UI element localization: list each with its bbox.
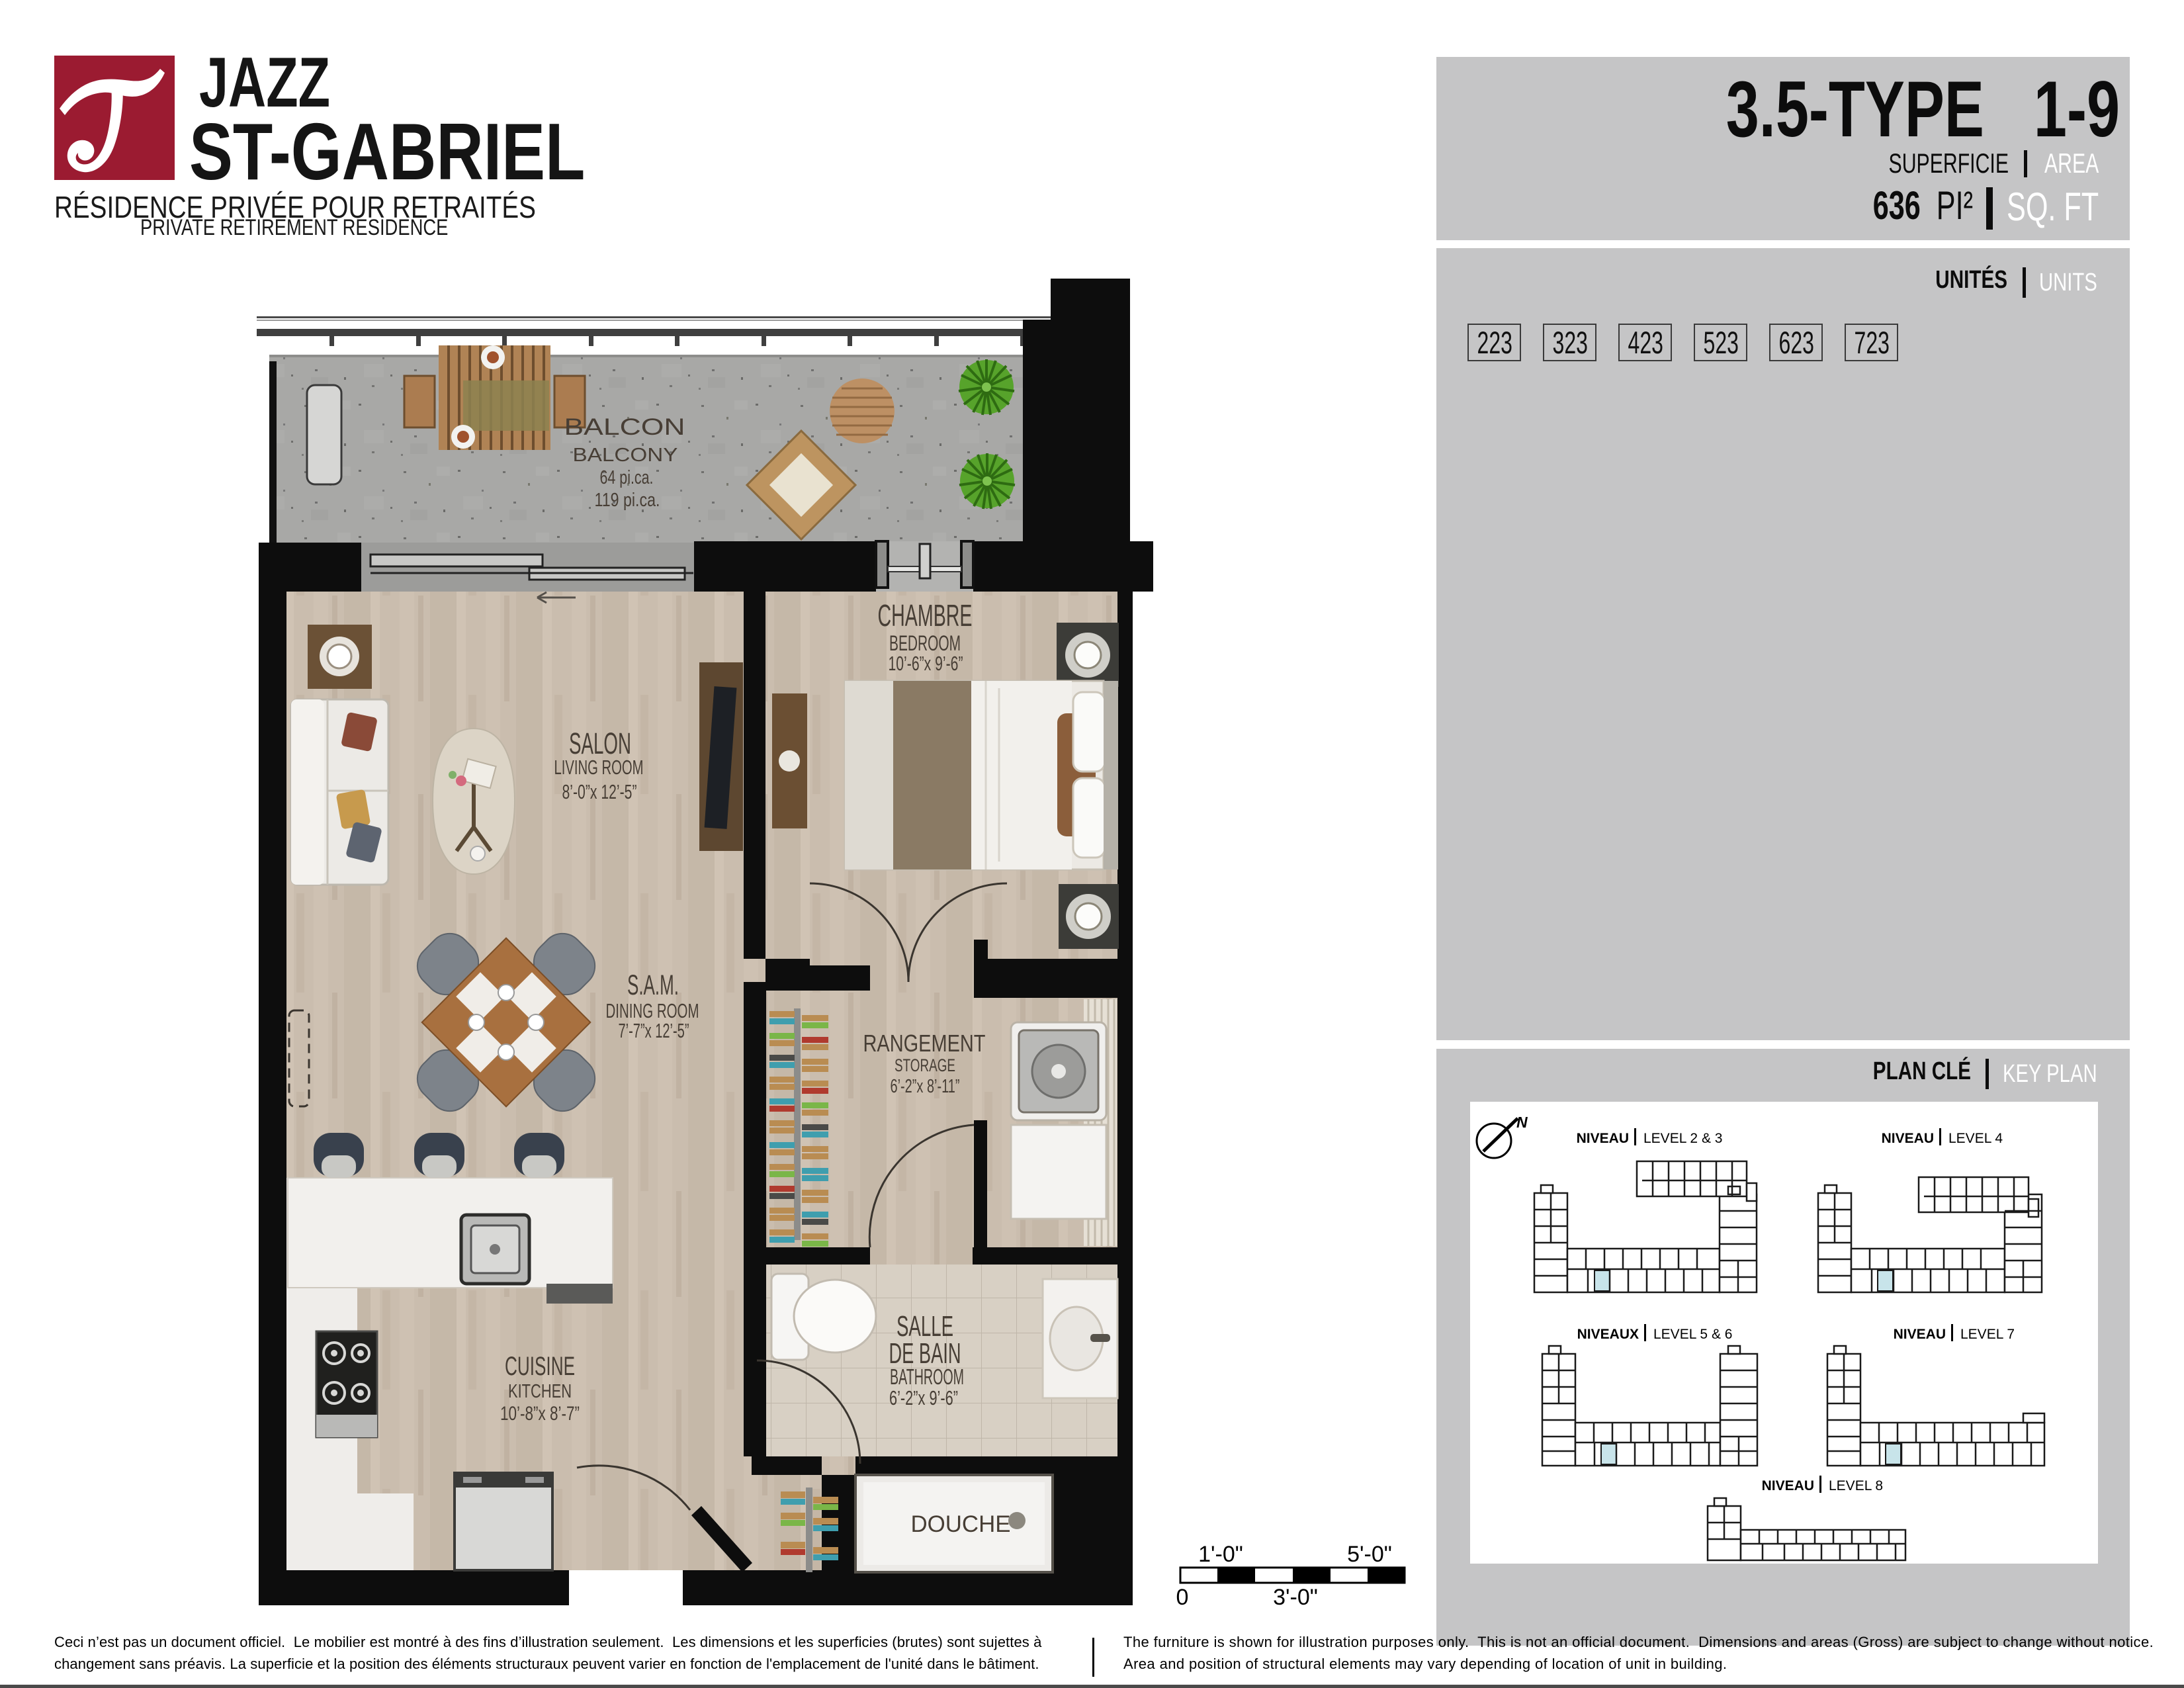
svg-text:RANGEMENT: RANGEMENT	[863, 1030, 986, 1057]
svg-text:10’-8”x 8’-7”: 10’-8”x 8’-7”	[500, 1403, 580, 1425]
svg-text:NIVEAU: NIVEAU	[1894, 1327, 1946, 1342]
svg-text:LEVEL 8: LEVEL 8	[1829, 1478, 1883, 1493]
svg-text:119 pi.ca.: 119 pi.ca.	[595, 490, 660, 511]
svg-text:64 pi.ca.: 64 pi.ca.	[600, 467, 654, 488]
svg-text:NIVEAUX: NIVEAUX	[1577, 1327, 1639, 1342]
svg-text:BALCONY: BALCONY	[573, 445, 678, 466]
svg-text:8’-0”x 12’-5”: 8’-0”x 12’-5”	[562, 780, 637, 803]
svg-text:S.A.M.: S.A.M.	[627, 969, 679, 1001]
svg-text:0: 0	[1176, 1585, 1189, 1610]
svg-text:N: N	[1516, 1114, 1528, 1131]
svg-text:BALCON: BALCON	[564, 414, 685, 440]
svg-text:KITCHEN: KITCHEN	[508, 1381, 572, 1402]
svg-text:DOUCHE: DOUCHE	[911, 1511, 1011, 1537]
svg-text:6’-2”x 8’-11”: 6’-2”x 8’-11”	[891, 1076, 960, 1097]
svg-text:6’-2”x 9’-6”: 6’-2”x 9’-6”	[889, 1386, 958, 1409]
svg-text:LIVING ROOM: LIVING ROOM	[554, 756, 644, 779]
svg-text:5'-0": 5'-0"	[1347, 1542, 1392, 1567]
svg-text:LEVEL 7: LEVEL 7	[1960, 1327, 2015, 1342]
svg-text:CHAMBRE: CHAMBRE	[878, 598, 973, 633]
svg-text:STORAGE: STORAGE	[895, 1055, 955, 1075]
svg-text:NIVEAU: NIVEAU	[1577, 1131, 1629, 1146]
svg-text:LEVEL 2 & 3: LEVEL 2 & 3	[1643, 1131, 1722, 1146]
svg-text:NIVEAU: NIVEAU	[1882, 1131, 1934, 1146]
svg-text:1'-0": 1'-0"	[1198, 1542, 1243, 1567]
svg-text:10’-6”x 9’-6”: 10’-6”x 9’-6”	[889, 652, 963, 675]
svg-text:LEVEL 4: LEVEL 4	[1948, 1131, 2003, 1146]
svg-text:3'-0": 3'-0"	[1273, 1585, 1318, 1610]
svg-text:7’-7”x 12’-5”: 7’-7”x 12’-5”	[619, 1019, 689, 1042]
svg-text:NIVEAU: NIVEAU	[1762, 1478, 1814, 1493]
svg-text:BATHROOM: BATHROOM	[890, 1364, 964, 1389]
svg-text:LEVEL 5 & 6: LEVEL 5 & 6	[1653, 1327, 1732, 1342]
svg-text:CUISINE: CUISINE	[505, 1352, 575, 1381]
